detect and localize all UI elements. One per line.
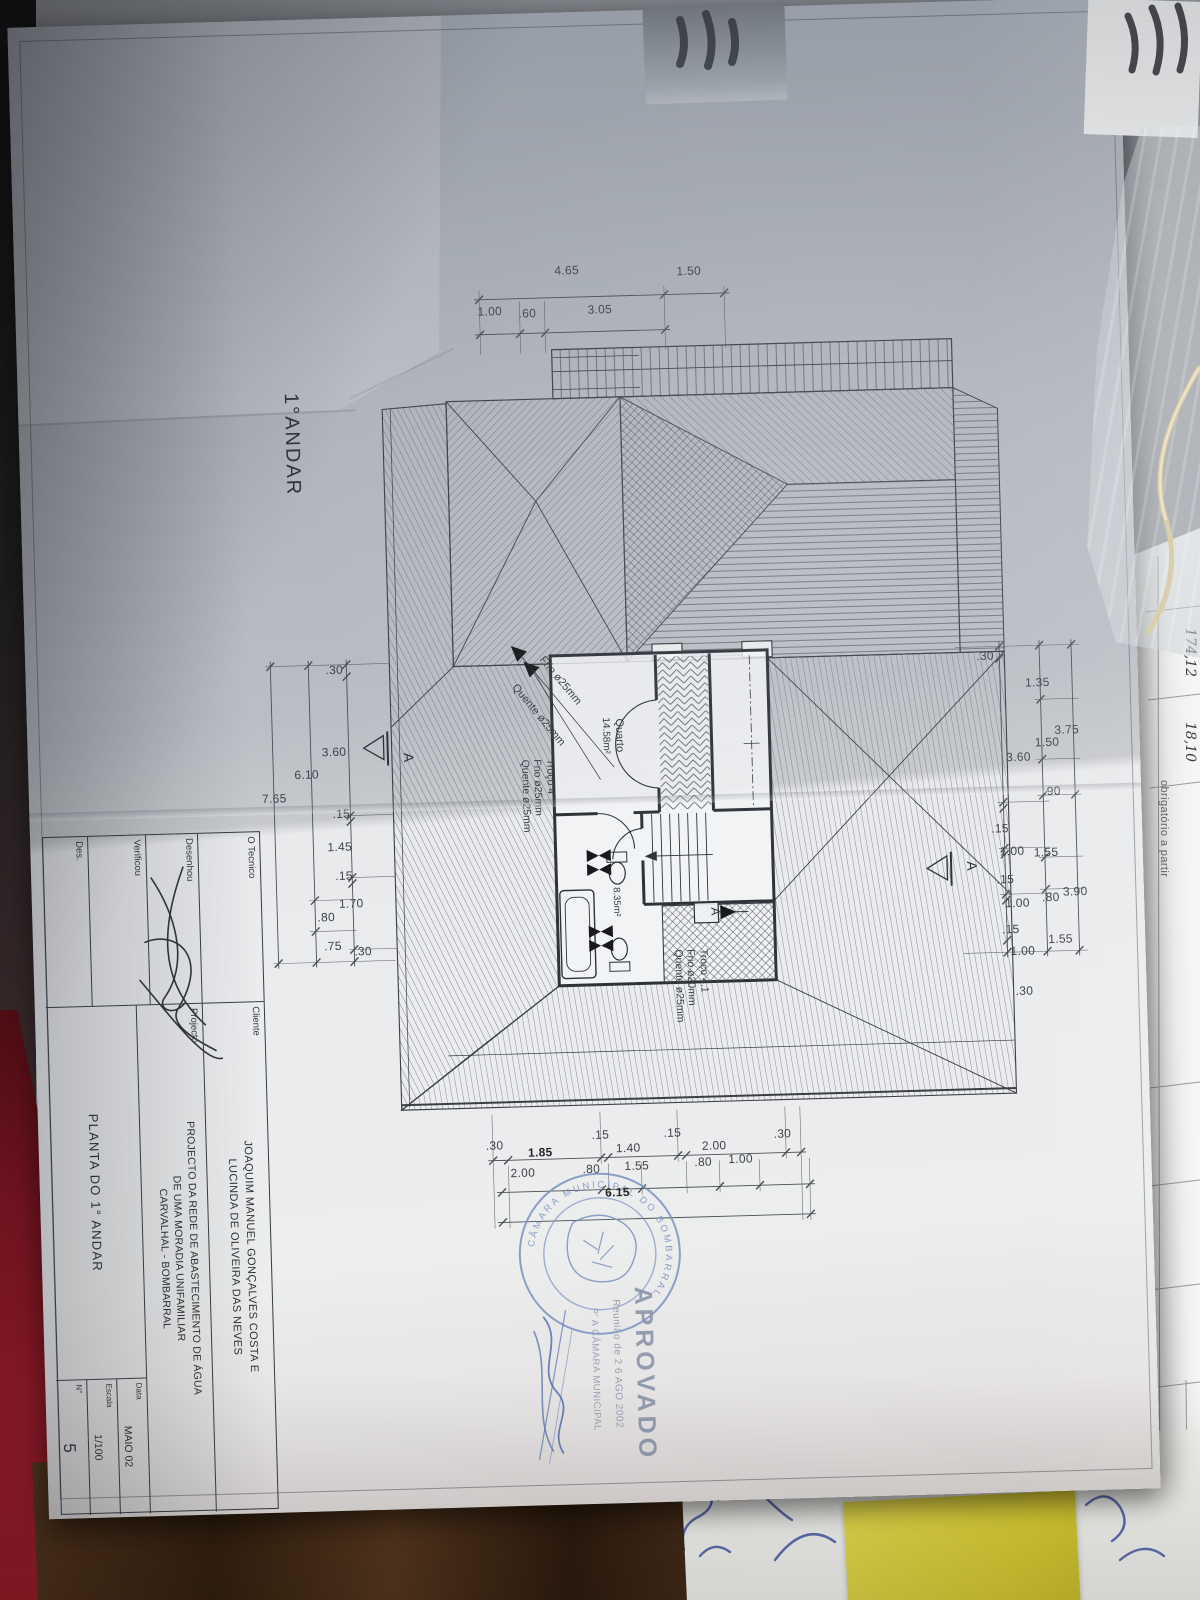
dim-label: 1.00 [1000,845,1025,858]
title-block-meta: Data MAIO 02 Escala 1/100 N° 5 [56,1378,150,1515]
approved-stamp-text: APROVADO [628,1286,662,1461]
dim-label: 1.70 [339,897,364,910]
rooms [550,650,776,986]
dim-label: .15 [335,870,353,882]
dim-label: 1.85 [528,1146,553,1159]
desenhou-label: Desenhou [183,838,195,882]
seal-text: CÂMARA MUNICIPAL DO BOMBARRAL [524,1178,675,1304]
dim-label: .90 [1043,785,1061,797]
cell-escala: Escala 1/100 [86,1379,120,1515]
dim-label: .30 [976,650,994,662]
escala-value: 1/100 [90,1380,106,1515]
room-area: 14.58m² [600,717,612,754]
room-name: Quarto [612,717,626,754]
dim-label: 1.50 [1035,736,1060,749]
dim-label: .30 [354,945,372,957]
troco4-title: Troço 4 [543,759,558,832]
cell-numero: N° 5 [56,1380,90,1516]
room-label-quarto: Quarto 14.58m² [599,717,626,754]
section-letter-right: A [964,861,980,871]
dim-label: .15 [1002,923,1020,935]
room-label-bathroom-area: 8.35m² [610,887,622,917]
dim-label: 1.00 [477,305,502,318]
dim-label: 1.45 [327,841,352,854]
dim-label: .15 [996,873,1014,885]
dim-label: 3.60 [322,746,347,759]
section-letter-left: A [401,753,417,763]
tecnico-label: O Tecnico [245,836,257,878]
dim-label: .80 [317,911,335,923]
dim-label: .30 [773,1127,791,1139]
troco41-quente: Quente ø25mm [672,949,687,1022]
dim-label: .15 [332,808,350,820]
dark-handwriting-top-right [1086,0,1200,136]
dim-label: 1.55 [1034,846,1059,859]
dim-label: 3.05 [587,303,612,316]
troco41-frio: Frio ø20mm [684,949,699,1022]
string-on-glass [1080,126,1200,658]
dim-label: .30 [1016,985,1034,997]
troco4-frio: Frio ø25mm [531,759,546,832]
floor-title: 1°ANDAR [279,393,305,497]
dim-label: 6.10 [294,768,319,781]
dim-label: 2.00 [510,1167,535,1180]
drawing-sheet: A A A CÂMARA MUNIC [7,0,1160,1519]
dim-label: .15 [591,1128,609,1140]
dim-label: 1.50 [676,265,701,278]
title-block: O Tecnico Desenhou Verificou Des. Client… [42,831,279,1515]
dim-label: 1.00 [1010,944,1035,957]
cell-tecnico: O Tecnico [197,832,264,1004]
dim-label: 7.65 [262,792,287,805]
svg-text:CÂMARA MUNICIPAL DO BOMBARRAL: CÂMARA MUNICIPAL DO BOMBARRAL [524,1178,675,1304]
dim-label: .30 [486,1139,504,1151]
troco4-quente: Quente ø25mm [518,759,533,832]
dim-label: .60 [518,307,536,319]
dim-label: 3.60 [1006,751,1031,764]
dim-label: .80 [1042,891,1060,903]
dim-label: .80 [582,1163,600,1175]
verificou-label: Verificou [131,839,143,876]
dim-label: 1.00 [728,1152,753,1165]
dim-label: .80 [694,1156,712,1168]
dark-handwriting-top [644,4,786,102]
pipe-label-troco4: Troço 4 Frio ø25mm Quente ø25mm [518,759,558,833]
cell-desenhou: Desenhou [145,834,202,1005]
escala-label: Escala [104,1383,114,1407]
dim-label: 1.40 [616,1142,641,1155]
drawing-title: PLANTA DO 1° ANDAR [83,1007,108,1379]
approval-signature [533,1311,575,1464]
data-value: MAIO 02 [120,1379,136,1514]
handwritten-value-2: 18,10 [1182,722,1198,762]
data-label: Data [134,1383,143,1400]
dim-label: 2.00 [702,1139,727,1152]
troco41-title: Troço 4.1 [697,949,712,1022]
dim-label: 4.65 [554,264,579,277]
pipe-label-troco41: Troço 4.1 Frio ø20mm Quente ø25mm [672,949,712,1023]
title-block-table: O Tecnico Desenhou Verificou Des. Client… [42,831,279,1515]
dim-label: .75 [324,940,342,952]
dim-label: .15 [663,1126,681,1138]
dim-label: 1.55 [624,1159,649,1172]
printed-margin-text: obrigatório a partir [1158,780,1170,877]
numero-value: 5 [57,1380,81,1516]
cell-verificou: Verificou [87,835,150,1007]
dim-label: 1.00 [1005,897,1030,910]
photo-of-floor-plan: 174,12 18,10 2,35 obrigatório a partir [0,0,1200,1600]
dim-label: 3.90 [1063,885,1088,898]
dim-label: .30 [325,664,343,676]
dim-label-total: 6.15 [605,1186,630,1199]
des-label: Des. [73,841,85,861]
detail-letter: A [708,907,722,915]
dim-label: 1.35 [1025,676,1050,689]
dim-label: .15 [991,822,1009,834]
cell-data: Data MAIO 02 [116,1378,150,1514]
cell-des: Des. [41,837,92,1008]
cell-drawing-title: PLANTA DO 1° ANDAR [46,1006,146,1381]
dim-label: 1.55 [1048,932,1073,945]
dim-label: 3.75 [1054,723,1079,736]
